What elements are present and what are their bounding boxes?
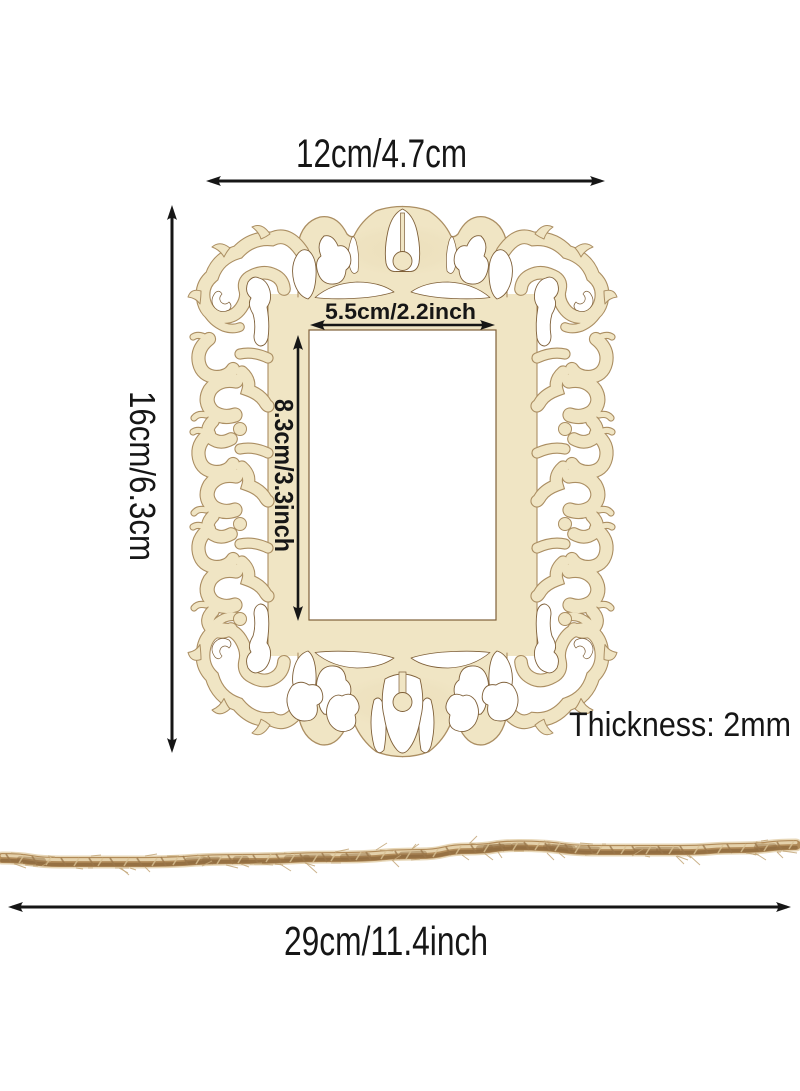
svg-text:16cm/6.3cm: 16cm/6.3cm (122, 391, 163, 561)
svg-text:Thickness: 2mm: Thickness: 2mm (569, 706, 791, 744)
svg-text:8.3cm/3.3inch: 8.3cm/3.3inch (269, 399, 299, 552)
svg-text:29cm/11.4inch: 29cm/11.4inch (284, 918, 488, 964)
svg-text:12cm/4.7cm: 12cm/4.7cm (296, 132, 467, 176)
svg-text:5.5cm/2.2inch: 5.5cm/2.2inch (325, 299, 476, 324)
